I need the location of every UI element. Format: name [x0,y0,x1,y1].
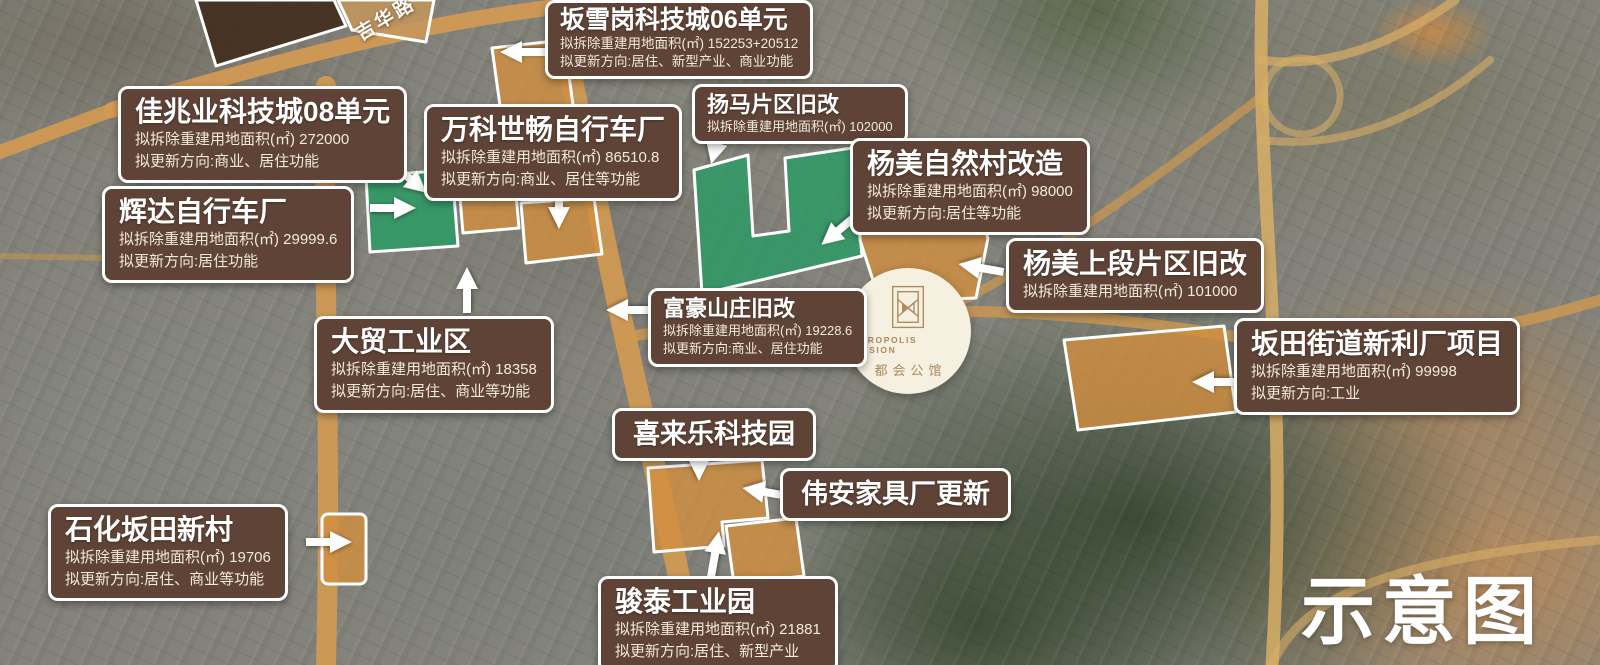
callout-yangmei-village: 杨美自然村改造 拟拆除重建用地面积(㎡) 98000 拟更新方向:居住等功能 [850,138,1090,235]
connector-arrow [1192,370,1238,394]
callout-shihua: 石化坂田新村 拟拆除重建用地面积(㎡) 19706 拟更新方向:居住、商业等功能 [48,504,288,601]
road-loop [1264,58,1340,134]
callout-title: 伟安家具厂更新 [801,479,990,510]
callout-direction: 拟更新方向:居住功能 [119,252,337,272]
callout-title: 辉达自行车厂 [119,196,337,228]
callout-yangmei-upper: 杨美上段片区旧改 拟拆除重建用地面积(㎡) 101000 [1006,238,1264,313]
connector-arrow [500,40,546,64]
callout-direction: 拟更新方向:工业 [1251,384,1503,404]
callout-title: 杨美自然村改造 [867,148,1073,180]
parcel-orange [726,518,804,584]
callout-title: 扬马片区旧改 [707,92,893,117]
callout-title: 佳兆业科技城08单元 [135,96,390,128]
callout-direction: 拟更新方向:居住、新型产业 [615,642,821,662]
callout-area: 拟拆除重建用地面积(㎡) 152253+20512 [560,35,798,53]
logo-name-cn: 都会公馆 [874,360,946,379]
callout-damao: 大贸工业区 拟拆除重建用地面积(㎡) 18358 拟更新方向:居住、商业等功能 [314,316,554,413]
callout-area: 拟拆除重建用地面积(㎡) 19228.6 [663,322,852,339]
callout-area: 拟拆除重建用地面积(㎡) 19706 [65,548,271,568]
logo-monogram-icon [891,284,925,330]
callout-area: 拟拆除重建用地面积(㎡) 21881 [615,620,821,640]
connector-arrow [306,530,352,554]
callout-area: 拟拆除重建用地面积(㎡) 18358 [331,360,537,380]
schematic-watermark: 示意图 [1301,552,1544,659]
road-ramp [1262,60,1490,142]
callout-title: 骏泰工业园 [615,586,821,618]
callout-direction: 拟更新方向:居住等功能 [867,204,1073,224]
callout-jiazhaoye-08: 佳兆业科技城08单元 拟拆除重建用地面积(㎡) 272000 拟更新方向:商业、… [118,86,407,183]
callout-huida-bicycle: 辉达自行车厂 拟拆除重建用地面积(㎡) 29999.6 拟更新方向:居住功能 [102,186,354,283]
schematic-map: 吉华路 METROPOLIS MANSION 都会公馆 坂雪岗科技城06单元 拟… [0,0,1600,665]
callout-title: 杨美上段片区旧改 [1023,248,1247,280]
callout-title: 喜来乐科技园 [633,419,795,450]
callout-area: 拟拆除重建用地面积(㎡) 99998 [1251,362,1503,382]
connector-arrow [606,298,652,322]
callout-direction: 拟更新方向:商业、居住等功能 [441,170,665,190]
callout-xinli: 坂田街道新利厂项目 拟拆除重建用地面积(㎡) 99998 拟更新方向:工业 [1234,318,1520,415]
callout-area: 拟拆除重建用地面积(㎡) 102000 [707,118,893,135]
callout-title: 万科世畅自行车厂 [441,114,665,146]
callout-title: 富豪山庄旧改 [663,296,852,321]
road-ramp [1262,0,1455,62]
callout-area: 拟拆除重建用地面积(㎡) 98000 [867,182,1073,202]
callout-banxuegang-06: 坂雪岗科技城06单元 拟拆除重建用地面积(㎡) 152253+20512 拟更新… [545,0,813,79]
connector-arrow [455,267,479,313]
callout-fuhao: 富豪山庄旧改 拟拆除重建用地面积(㎡) 19228.6 拟更新方向:商业、居住功… [648,288,867,367]
callout-juntai: 骏泰工业园 拟拆除重建用地面积(㎡) 21881 拟更新方向:居住、新型产业 [598,576,838,665]
connector-arrow [370,196,416,220]
callout-area: 拟拆除重建用地面积(㎡) 29999.6 [119,230,337,250]
road [0,110,112,152]
callout-area: 拟拆除重建用地面积(㎡) 101000 [1023,282,1247,302]
callout-wanke-bicycle: 万科世畅自行车厂 拟拆除重建用地面积(㎡) 86510.8 拟更新方向:商业、居… [424,104,682,201]
callout-yangma: 扬马片区旧改 拟拆除重建用地面积(㎡) 102000 [692,84,908,144]
callout-xilaile: 喜来乐科技园 [612,408,816,461]
callout-direction: 拟更新方向:商业、居住功能 [135,152,390,172]
callout-direction: 拟更新方向:商业、居住功能 [663,340,852,357]
callout-direction: 拟更新方向:居住、商业等功能 [331,382,537,402]
callout-weian: 伟安家具厂更新 [780,468,1011,521]
callout-title: 大贸工业区 [331,326,537,358]
callout-title: 坂雪岗科技城06单元 [560,6,798,35]
callout-direction: 拟更新方向:居住、新型产业、商业功能 [560,53,798,71]
callout-title: 坂田街道新利厂项目 [1251,328,1503,360]
callout-direction: 拟更新方向:居住、商业等功能 [65,570,271,590]
callout-area: 拟拆除重建用地面积(㎡) 86510.8 [441,148,665,168]
callout-title: 石化坂田新村 [65,514,271,546]
callout-area: 拟拆除重建用地面积(㎡) 272000 [135,130,390,150]
